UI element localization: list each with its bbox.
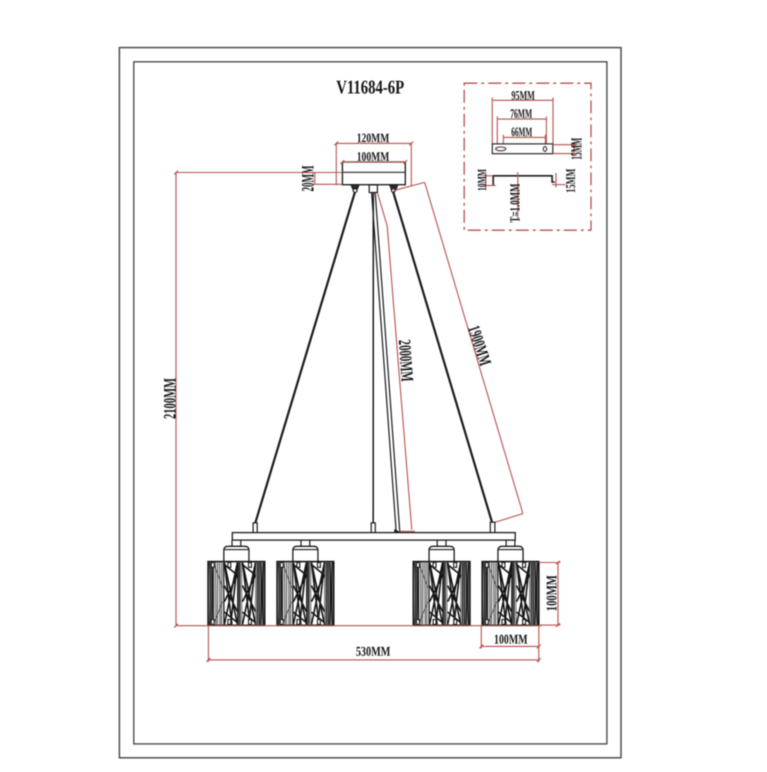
svg-text:100MM: 100MM — [494, 632, 528, 647]
svg-text:15MM: 15MM — [563, 169, 578, 193]
svg-text:530MM: 530MM — [356, 644, 391, 659]
svg-text:100MM: 100MM — [357, 149, 390, 164]
svg-text:2100MM: 2100MM — [160, 378, 180, 419]
svg-text:95MM: 95MM — [511, 88, 535, 103]
svg-text:T=1.0MM: T=1.0MM — [508, 184, 523, 223]
svg-text:20MM: 20MM — [298, 165, 318, 191]
svg-text:2000MM: 2000MM — [395, 339, 418, 383]
svg-text:120MM: 120MM — [357, 130, 390, 145]
svg-text:100MM: 100MM — [545, 575, 561, 611]
svg-text:76MM: 76MM — [510, 106, 532, 121]
svg-text:15MM: 15MM — [569, 138, 586, 160]
svg-text:V11684-6P: V11684-6P — [336, 77, 404, 98]
svg-text:10MM: 10MM — [475, 169, 489, 191]
svg-text:66MM: 66MM — [511, 124, 532, 139]
